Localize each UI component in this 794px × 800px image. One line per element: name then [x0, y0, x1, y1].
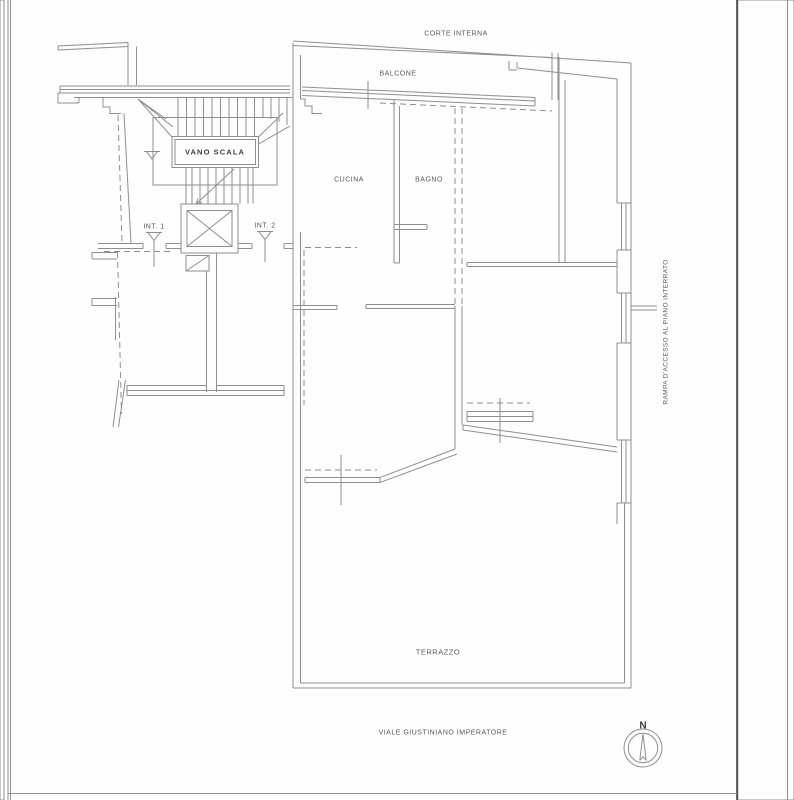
compass-rose [624, 729, 662, 767]
label-terrazzo: TERRAZZO [416, 648, 460, 657]
left-wing-interior [127, 253, 284, 396]
terrace-outline [293, 503, 631, 688]
label-cucina: CUCINA [334, 177, 364, 184]
kitchen-bath-walls [293, 100, 462, 449]
floor-plan-drawing [0, 0, 794, 800]
elevator-shaft [181, 204, 238, 271]
label-int-2: INT. 2 [254, 223, 275, 230]
label-rampa-accesso-piano-interrato: RAMPA D'ACCESSO AL PIANO INTERRATO [663, 259, 670, 404]
southwest-junction [305, 398, 500, 505]
label-balcone: BALCONE [380, 71, 417, 78]
label-int-1: INT. 1 [143, 224, 164, 231]
label-street-viale-giustiniano-imperatore: VIALE GIUSTINIANO IMPERATORE [379, 730, 508, 737]
right-rooms [463, 57, 631, 688]
landing-wall [98, 244, 357, 252]
label-vano-scala: VANO SCALA [185, 148, 245, 157]
scanned-floor-plan-page: CORTE INTERNA BALCONE CUCINA BAGNO VANO … [0, 0, 794, 800]
label-corte-interna: CORTE INTERNA [424, 31, 488, 38]
compass-north-label: N [639, 721, 646, 732]
label-bagno: BAGNO [415, 177, 443, 184]
page-frame [0, 0, 794, 800]
north-facade-balcony [293, 41, 631, 111]
east-windows [617, 203, 657, 503]
central-west-wall [293, 43, 322, 688]
top-left-wing [58, 43, 293, 428]
